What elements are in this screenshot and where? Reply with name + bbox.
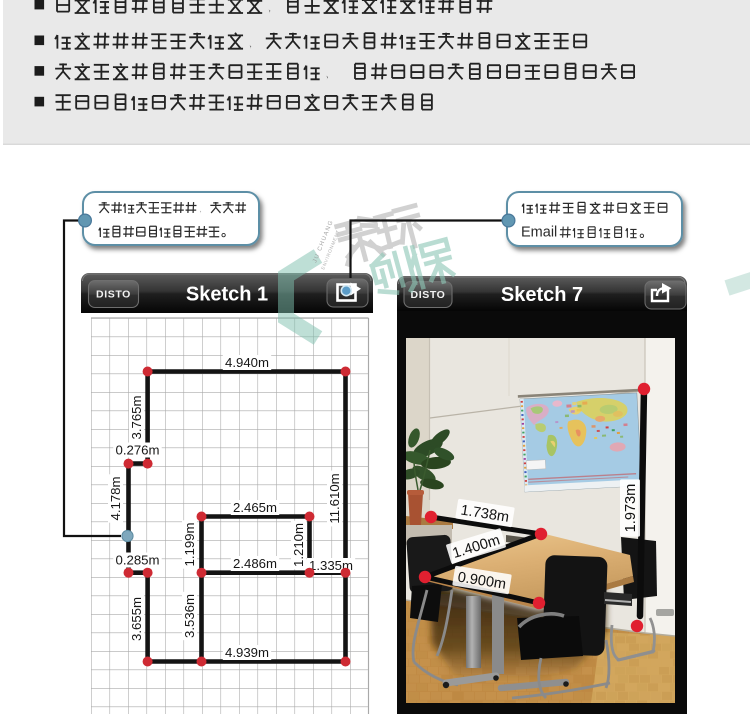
svg-text:4.940m: 4.940m	[225, 355, 269, 370]
svg-text:0.276m: 0.276m	[116, 443, 160, 458]
svg-text:Sketch 7: Sketch 7	[501, 284, 583, 306]
svg-text:3.536m: 3.536m	[182, 594, 197, 638]
svg-text:Email: Email	[521, 224, 557, 240]
svg-text:1.210m: 1.210m	[291, 523, 306, 567]
svg-text:2.465m: 2.465m	[233, 500, 277, 515]
svg-text:0.285m: 0.285m	[116, 553, 160, 568]
svg-text:4.178m: 4.178m	[108, 476, 123, 520]
svg-text:1.973m: 1.973m	[623, 484, 639, 533]
svg-text:11.610m: 11.610m	[327, 473, 342, 523]
svg-text:DISTO: DISTO	[96, 289, 131, 301]
svg-text:DISTO: DISTO	[411, 289, 446, 301]
svg-text:2.486m: 2.486m	[233, 556, 277, 571]
svg-text:4.939m: 4.939m	[225, 645, 269, 660]
svg-text:3.655m: 3.655m	[129, 597, 144, 641]
svg-text:Sketch 1: Sketch 1	[186, 284, 268, 306]
svg-text:1.199m: 1.199m	[182, 522, 197, 566]
svg-text:3.765m: 3.765m	[129, 395, 144, 439]
